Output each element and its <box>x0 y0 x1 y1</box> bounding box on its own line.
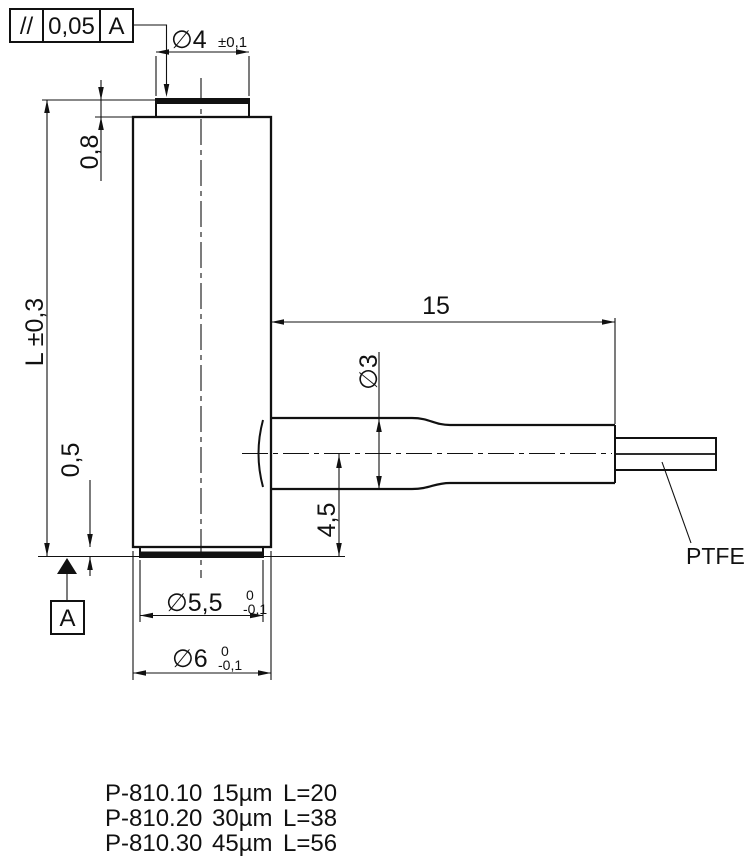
ptfe-label: PTFE <box>686 543 745 569</box>
tolerance-value: 0,05 <box>48 13 95 40</box>
dim-cable-offset: 4,5 <box>313 454 342 556</box>
model-table: P-810.10 15µm L=20 P-810.20 30µm L=38 P-… <box>105 780 337 857</box>
dim-arrow <box>98 117 104 130</box>
dim-arrow <box>602 319 615 325</box>
dim-arrow <box>87 557 93 570</box>
dim-arrow <box>271 319 284 325</box>
dim-arrow <box>336 455 342 468</box>
actuator-outline <box>133 99 716 557</box>
tolerance-frame: // 0,05 A <box>10 9 169 97</box>
dim-text-bottom-cap-diameter: ∅5,5 <box>166 589 223 617</box>
dim-arrow <box>44 543 50 556</box>
dim-text-top-cap-thickness: 0,8 <box>76 135 104 170</box>
dim-text-sleeve-length: 15 <box>422 292 450 320</box>
dim-arrow <box>44 100 50 113</box>
dim-text-cable-offset: 4,5 <box>313 503 341 538</box>
dim-top-cap-thickness: 0,8 <box>76 80 132 181</box>
top-cap-face <box>156 99 249 104</box>
dim-arrow <box>258 670 271 676</box>
datum-label: A <box>59 605 75 632</box>
sleeve-top-edge <box>271 418 615 425</box>
model-stroke: 30µm <box>212 805 273 832</box>
tolerance-leader-arrow <box>164 84 170 97</box>
dim-top-diameter: ∅4 ±0,1 <box>156 26 249 96</box>
model-length: L=38 <box>283 805 337 832</box>
dim-text-top-diameter: ∅4 <box>171 26 207 54</box>
dim-arrow <box>87 534 93 547</box>
sleeve-bottom-edge <box>271 483 615 489</box>
model-stroke: 45µm <box>212 830 273 857</box>
model-name: P-810.20 <box>105 805 202 832</box>
dim-text-length: L ±0,3 <box>21 298 49 366</box>
dim-text-bottom-cap-thickness: 0,5 <box>57 443 85 478</box>
ptfe-leader-line <box>662 462 691 543</box>
piezo-actuator-drawing: // 0,05 A ∅4 ±0,1 <box>0 0 750 861</box>
body-cylinder <box>133 117 271 547</box>
table-row: P-810.30 45µm L=56 <box>105 830 337 857</box>
datum-a: A <box>51 558 84 634</box>
tolerance-leader-line <box>133 25 167 87</box>
technical-drawing-sheet: // 0,05 A ∅4 ±0,1 <box>0 0 750 861</box>
dim-text-bottom-cap-tol-lower: -0,1 <box>243 601 267 617</box>
parallelism-symbol: // <box>20 13 34 40</box>
dim-text-sleeve-diameter: ∅3 <box>355 354 383 390</box>
table-row: P-810.20 30µm L=38 <box>105 805 337 832</box>
dim-arrow <box>376 419 382 432</box>
model-name: P-810.10 <box>105 780 202 807</box>
model-length: L=20 <box>283 780 337 807</box>
dim-text-body-diameter: ∅6 <box>172 645 208 673</box>
tolerance-datum-ref: A <box>108 13 124 40</box>
model-stroke: 15µm <box>212 780 273 807</box>
dim-sleeve-length: 15 <box>271 292 615 424</box>
model-name: P-810.30 <box>105 830 202 857</box>
dim-text-top-diameter-tol: ±0,1 <box>218 34 247 51</box>
ptfe-callout: PTFE <box>662 462 745 569</box>
model-length: L=56 <box>283 830 337 857</box>
table-row: P-810.10 15µm L=20 <box>105 780 337 807</box>
dim-arrow <box>140 613 153 619</box>
dim-sleeve-diameter: ∅3 <box>355 352 383 489</box>
datum-triangle <box>57 558 77 574</box>
dim-arrow <box>336 543 342 556</box>
dim-text-body-tol-lower: -0,1 <box>218 657 242 673</box>
dim-arrow <box>98 87 104 100</box>
dim-arrow <box>156 49 169 55</box>
dim-arrow <box>376 476 382 489</box>
dim-arrow <box>133 670 146 676</box>
dim-bottom-cap-diameter: ∅5,5 0 -0,1 <box>140 560 267 622</box>
